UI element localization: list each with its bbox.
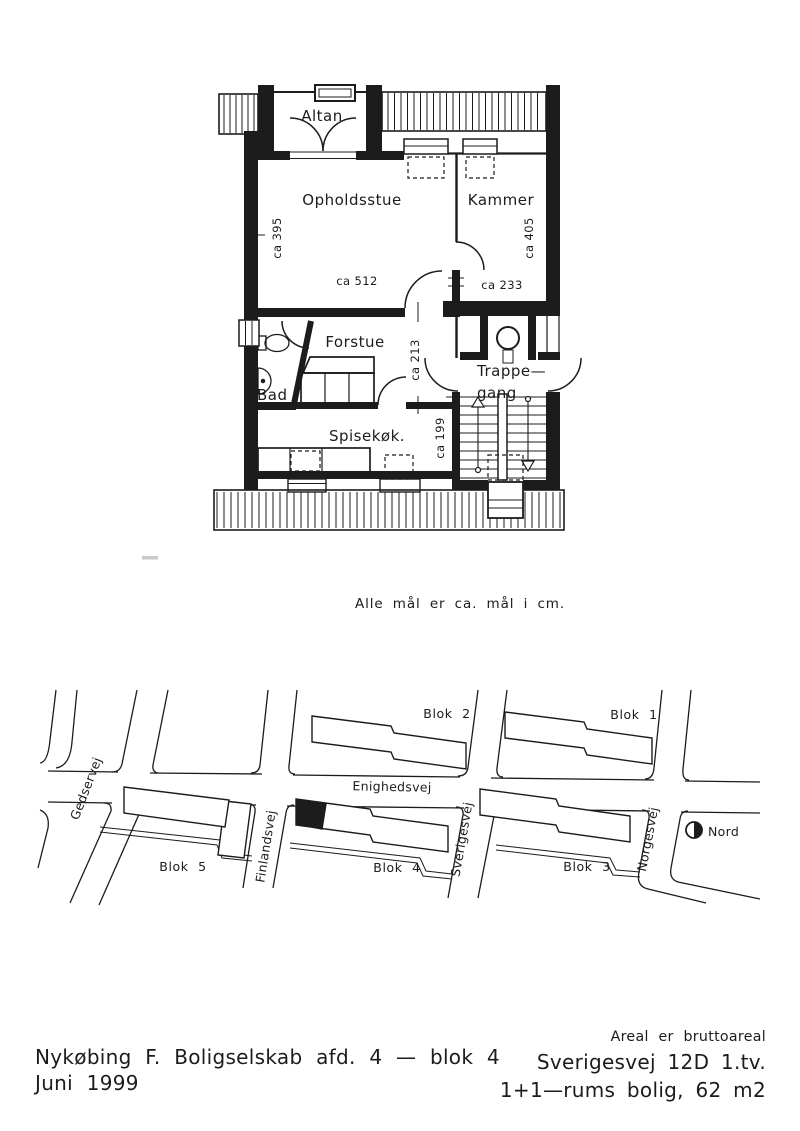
project-title: Nykøbing F. Boligselskab afd. 4 — blok 4 <box>35 1044 500 1070</box>
block-label-4: Blok 4 <box>373 860 420 875</box>
altan-threshold <box>290 152 356 159</box>
room-label-opholdsstue: Opholdsstue <box>302 191 401 209</box>
street-west-corner <box>38 690 77 868</box>
measurements-note: Alle mål er ca. mål i cm. <box>355 595 565 612</box>
project-date: Juni 1999 <box>35 1070 500 1096</box>
bad-window <box>239 320 259 346</box>
kitchen-counter <box>258 448 370 492</box>
room-label-trappegang-1: Trappe— <box>476 362 546 380</box>
drawing: Altan Opholdsstue Kammer Forstue Bad Spi… <box>0 0 800 1131</box>
building-blok2 <box>312 716 466 769</box>
entrance-door <box>425 358 458 391</box>
marked-unit-blok4 <box>297 800 326 829</box>
wardrobe <box>301 357 374 403</box>
spisekok-door <box>378 377 406 405</box>
measure-spisekok-width: ca 199 <box>433 417 447 458</box>
room-label-spisekok: Spisekøk. <box>329 427 405 445</box>
street-label-enighedsvej: Enighedsvej <box>352 778 431 794</box>
building-blok3 <box>480 789 630 842</box>
scan-artifact <box>142 556 158 560</box>
room-label-altan: Altan <box>301 107 343 125</box>
footer-left: Nykøbing F. Boligselskab afd. 4 — blok 4… <box>35 1044 500 1096</box>
measure-kammer-width: ca 233 <box>481 278 522 292</box>
stairs <box>460 394 546 480</box>
stair-exit <box>488 482 523 518</box>
room-label-kammer: Kammer <box>468 191 535 209</box>
block-label-5: Blok 5 <box>159 859 206 874</box>
room-label-trappegang-2: gang <box>477 384 517 402</box>
street-label-finlandsvej: Finlandsvej <box>252 809 278 883</box>
altan-planter <box>274 85 366 101</box>
kammer-door <box>456 242 484 270</box>
measure-forstue-width: ca 213 <box>408 339 422 380</box>
window-kammer <box>463 139 497 178</box>
window-opholdsstue <box>404 139 448 178</box>
compass-label: Nord <box>708 824 739 839</box>
north-compass <box>686 822 702 838</box>
floor-plan: Altan Opholdsstue Kammer Forstue Bad Spi… <box>142 85 581 612</box>
apartment-type: 1+1—rums bolig, 62 m2 <box>500 1078 766 1102</box>
neighbour-door <box>548 358 581 391</box>
toilet-icon <box>258 335 289 352</box>
measure-opholdsstue-depth: ca 395 <box>270 217 284 258</box>
measure-opholdsstue-width: ca 512 <box>336 274 377 288</box>
block-label-1: Blok 1 <box>610 707 657 722</box>
measure-kammer-depth: ca 405 <box>522 217 536 258</box>
opholdsstue-door <box>405 271 442 308</box>
room-label-bad: Bad <box>257 386 288 404</box>
altan-railing-left <box>219 94 258 134</box>
building-blok5 <box>124 787 229 827</box>
chimney-shaft <box>497 327 519 363</box>
room-label-forstue: Forstue <box>325 333 384 351</box>
address: Sverigesvej 12D 1.tv. <box>500 1050 766 1074</box>
altan-railing-right <box>382 92 546 131</box>
floor-plan-sheet: Altan Opholdsstue Kammer Forstue Bad Spi… <box>0 0 800 1131</box>
street-label-norgesvej: Norgesvej <box>634 806 661 873</box>
street-label-gedservej: Gedservej <box>67 755 105 822</box>
block-label-3: Blok 3 <box>563 859 610 874</box>
site-map: Nord Enighedsvej Gedservej Finlandsvej S… <box>38 690 760 905</box>
block-label-2: Blok 2 <box>423 706 470 721</box>
footer-right: Areal er bruttoareal Sverigesvej 12D 1.t… <box>500 1029 766 1102</box>
street-label-sverigesvej: Sverigesvej <box>448 801 476 878</box>
area-note: Areal er bruttoareal <box>500 1029 766 1045</box>
